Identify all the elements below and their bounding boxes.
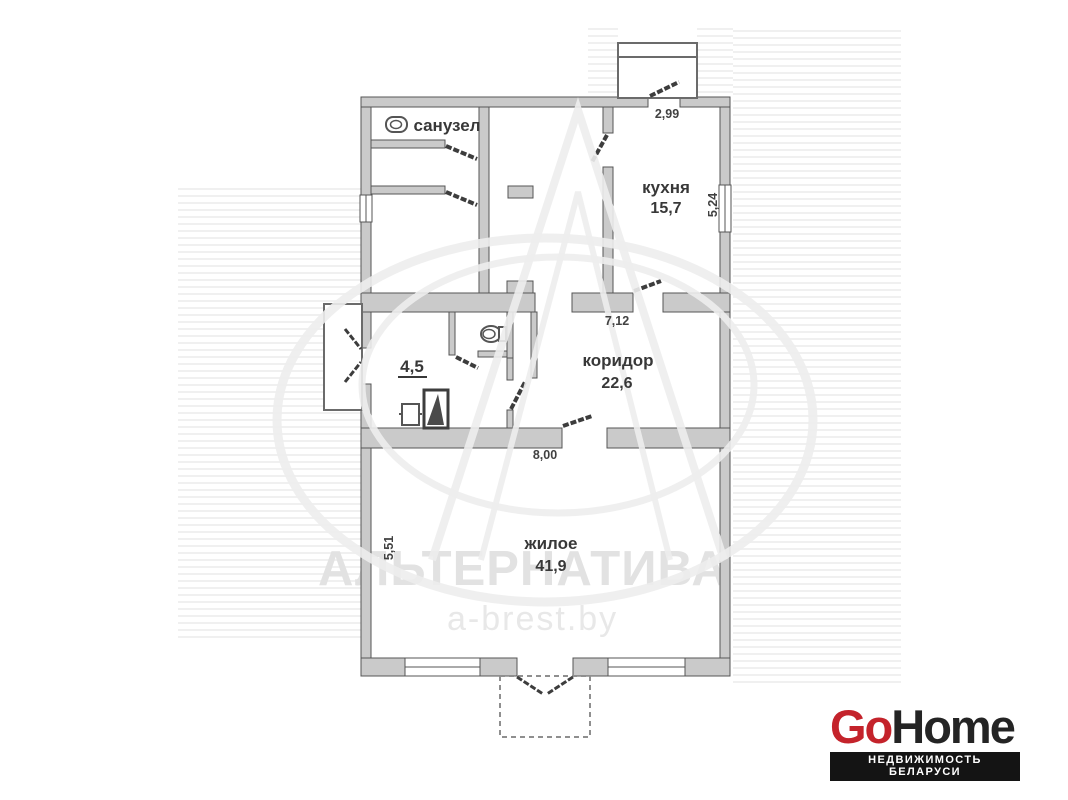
room-labels: санузел кухня 15,7 коридор 22,6 4,5 жило…	[398, 116, 690, 575]
door-leaf	[517, 677, 543, 694]
dim-kitchen-side: 5,24	[706, 193, 720, 217]
gohome-tagline: НЕДВИЖИМОСТЬ БЕЛАРУСИ	[830, 752, 1020, 781]
wall-segment	[361, 658, 405, 676]
door-post	[480, 658, 517, 676]
wall-segment	[361, 107, 371, 195]
side-porch	[324, 304, 362, 410]
room-label-sanuzel: санузел	[413, 116, 480, 135]
wall-segment	[607, 428, 730, 448]
wall-segment	[361, 293, 535, 312]
room-area-kitchen: 15,7	[650, 200, 681, 217]
wall-segment	[507, 358, 513, 380]
floorplan-page: АЛЬТЕРНАТИВА a-brest.by	[0, 0, 1068, 800]
dim-living-side: 5,51	[382, 536, 396, 560]
room-area-small-room: 4,5	[400, 357, 424, 376]
wall-segment	[371, 140, 445, 148]
wall-segment	[685, 658, 730, 676]
door-leaf	[547, 677, 573, 694]
room-label-living: жилое	[524, 534, 578, 553]
wall-segment	[361, 97, 648, 107]
logo-home: Home	[891, 700, 1014, 753]
wall-segment	[371, 186, 445, 194]
dim-corridor-top: 7,12	[605, 314, 629, 328]
wall-segment	[361, 428, 562, 448]
wc-closet-wall	[449, 312, 455, 355]
door-post	[573, 658, 608, 676]
wall-segment	[507, 410, 513, 428]
door-leaf	[446, 192, 477, 205]
room-area-corridor: 22,6	[601, 375, 632, 392]
gohome-logo: GoHome НЕДВИЖИМОСТЬ БЕЛАРУСИ	[830, 702, 1022, 781]
room-area-living: 41,9	[535, 558, 566, 575]
room-label-corridor: коридор	[582, 351, 653, 370]
dim-living-top: 8,00	[533, 448, 557, 462]
wall-segment	[720, 107, 730, 185]
floor-plan: санузел кухня 15,7 коридор 22,6 4,5 жило…	[0, 0, 1068, 800]
door-leaf	[446, 146, 477, 159]
wall-segment	[603, 107, 613, 133]
chimney-block	[508, 186, 533, 198]
top-vestibule	[618, 43, 697, 98]
door-leaf	[456, 357, 478, 368]
gohome-logo-text: GoHome	[830, 702, 1022, 751]
toilet-icon	[386, 117, 407, 132]
basin-icon	[402, 404, 419, 425]
door-leaf	[563, 416, 592, 426]
logo-go: Go	[830, 700, 891, 753]
dim-entry-top: 2,99	[655, 107, 679, 121]
room-label-kitchen: кухня	[642, 178, 690, 197]
bottom-porch-dashed	[500, 676, 590, 737]
